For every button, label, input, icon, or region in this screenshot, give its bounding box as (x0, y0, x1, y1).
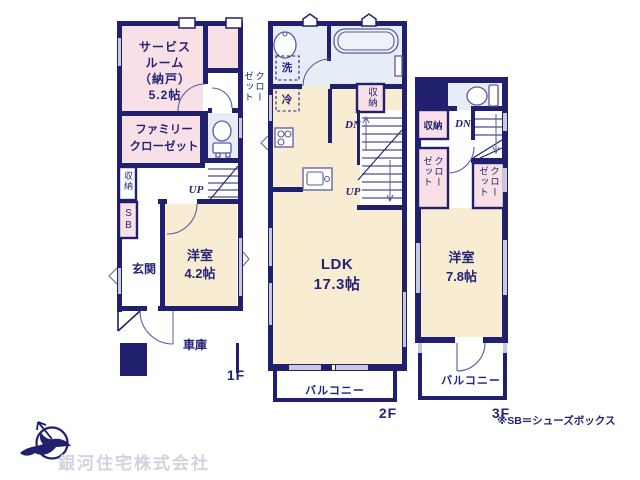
floorplan-page: サービス ルーム （納戸） 5.2帖 クローゼット ファミリー クローゼット 収… (0, 0, 640, 480)
window (118, 38, 121, 66)
door-arc (212, 88, 232, 108)
wall (327, 26, 331, 61)
bedroom-3f-label: 洋室 7.8帖 (420, 248, 503, 286)
shoebox-note: ※SB＝シューズボックス (497, 413, 615, 428)
sink-icon (274, 32, 296, 58)
window (269, 95, 272, 121)
wall (205, 158, 238, 163)
door-opening (167, 199, 197, 204)
kitchen-half-wall (273, 187, 303, 192)
wall (330, 84, 358, 89)
room-closet1f-fill (208, 26, 238, 71)
bedroom-1f-label: 洋室 4.2帖 (163, 247, 237, 283)
logo-arrow (37, 422, 52, 439)
window (418, 343, 422, 353)
closet-right-label: クローゼット (477, 166, 499, 202)
balcony-2f-label: バルコニー (300, 382, 370, 398)
balcony-wall (418, 396, 507, 400)
window-swing-mark (243, 252, 249, 266)
stairs-dn-label-2f: DN (342, 119, 364, 131)
ldk-label: LDK 17.3帖 (297, 255, 377, 295)
window (503, 113, 507, 131)
laundry-label: 洗 (279, 60, 295, 75)
entrance-door-arc (140, 311, 173, 344)
fridge-label: 冷 (279, 92, 295, 107)
vent-icon (362, 14, 376, 26)
window-mullion (332, 365, 335, 370)
storage-3f-label: 収納 (419, 118, 447, 132)
service-room-label: サービス ルーム （納戸） 5.2帖 (126, 39, 204, 103)
balcony-wall (393, 368, 397, 402)
garage-label: 車庫 (177, 336, 213, 353)
window (503, 240, 507, 295)
wall (357, 205, 407, 210)
storage-1f-label: 収納 (122, 171, 134, 197)
toilet-icon (213, 121, 231, 157)
closet-left-label: クローゼット (421, 156, 443, 192)
balcony-3f-label: バルコニー (436, 372, 506, 388)
stairs-up-label-2f: UP (342, 186, 364, 198)
window (336, 365, 368, 370)
company-name: 銀河住宅株式会社 (58, 449, 210, 474)
window (403, 292, 406, 347)
window-swing-mark (261, 136, 268, 150)
wall-block (415, 77, 448, 113)
kitchen-sink-icon (303, 168, 332, 190)
stairs-dn-label-3f: DN (452, 118, 474, 130)
wall (158, 306, 243, 311)
shoebox-label: SB (122, 208, 135, 234)
toilet-icon (467, 85, 498, 106)
wall (384, 84, 407, 89)
porch-corner-wall (118, 311, 140, 331)
window (269, 228, 272, 266)
window (239, 238, 242, 296)
window (269, 283, 272, 325)
wall (117, 111, 208, 116)
vent-icon (303, 14, 317, 26)
door-arc (457, 343, 485, 371)
window-swing-mark (109, 268, 117, 284)
vent-icon (179, 18, 195, 28)
window (503, 168, 507, 192)
balcony-wall (273, 398, 397, 402)
stove-icon (275, 128, 293, 147)
door-opening (455, 337, 483, 343)
wall (117, 306, 147, 311)
stairs-up-label-1f: UP (185, 184, 207, 196)
closet-1f-label: クローゼット (242, 71, 264, 107)
door-arc (448, 147, 474, 173)
floor-label-1f: 1F (222, 367, 250, 383)
shower-panel-icon (395, 56, 402, 76)
stairs-1f (208, 166, 238, 202)
wall (268, 84, 302, 89)
family-closet-label: ファミリー クローゼット (122, 122, 206, 156)
wall (471, 106, 502, 111)
wall (328, 89, 332, 143)
vent-icon (226, 18, 242, 28)
entrance-label: 玄関 (127, 260, 161, 277)
floor-label-2f: 2F (374, 405, 402, 421)
storage-2f-label: 収納 (365, 87, 377, 111)
wall (205, 68, 238, 73)
floorplan-drawing (0, 0, 640, 480)
stairs-3f (473, 114, 502, 158)
window (118, 268, 121, 294)
window (289, 365, 321, 370)
garage-pillar (120, 343, 147, 376)
balcony-wall (273, 368, 277, 402)
window (503, 343, 507, 353)
door-opening (212, 108, 232, 113)
window (239, 118, 242, 138)
wall (268, 21, 407, 26)
bathtub-icon (334, 29, 398, 53)
